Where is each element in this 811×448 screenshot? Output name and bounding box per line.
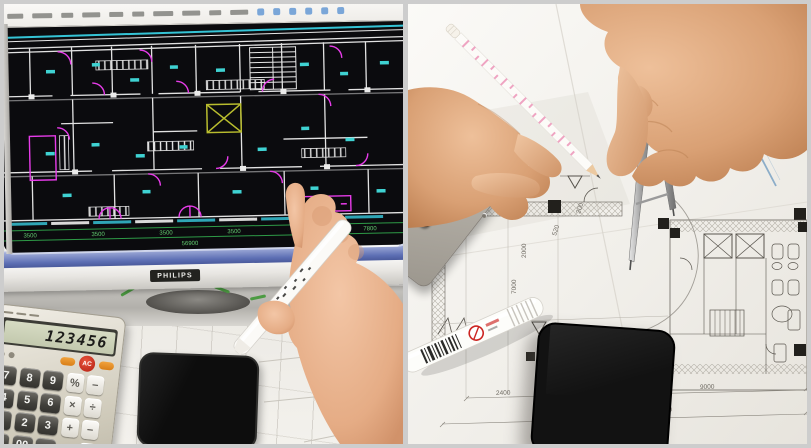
phone-screen-reflection: [546, 321, 677, 404]
smartphone: [136, 352, 259, 444]
menu-item-placeholder: [209, 10, 221, 15]
calculator-small-button: [8, 352, 15, 359]
calc-key-2: 2: [14, 412, 36, 433]
calc-key-9: 9: [42, 370, 64, 391]
dim-label: 3500: [295, 228, 309, 234]
menu-item-placeholder: [7, 14, 23, 19]
dim-label: 3500: [91, 232, 105, 238]
cad-columns: [28, 87, 372, 175]
calculator-keypad: 7 8 9 % − 4 5 6 × ÷ 1 2 3 + − 0 00 . =: [4, 365, 113, 444]
calc-key-6: 6: [39, 392, 61, 413]
calc-key-multiply: ×: [63, 395, 82, 416]
cad-walls: [4, 36, 403, 221]
calc-key-divide: ÷: [83, 397, 102, 418]
cad-hatched-walls: [58, 56, 347, 217]
menu-item-placeholder: [109, 12, 123, 17]
dim-7000: 7000: [511, 279, 518, 294]
calc-key-0: 0: [4, 432, 10, 444]
calc-key-plus: +: [60, 417, 79, 438]
calc-key-3: 3: [37, 415, 59, 436]
menu-item-placeholder: [32, 13, 52, 18]
menu-item-placeholder: [182, 10, 200, 15]
calc-key-1: 1: [4, 409, 12, 430]
toolbar-help-icon: [337, 7, 344, 14]
calc-key-4: 4: [4, 387, 15, 408]
dim-2000: 2000: [521, 243, 528, 258]
menu-item-placeholder: [132, 11, 144, 16]
calculator-memory-button: [60, 357, 76, 367]
calculator-ce-button: [99, 361, 115, 371]
dim-total-label: 56900: [182, 241, 199, 247]
calc-key-8: 8: [19, 367, 41, 388]
dim-2400: 2400: [496, 390, 511, 397]
monitor-brand-logo: PHILIPS: [150, 269, 200, 282]
toolbar-measure-icon: [289, 8, 296, 15]
cad-elevator: [207, 104, 242, 133]
calculator: 123456 AC 7 8 9 % − 4 5 6 × ÷ 1: [4, 303, 127, 444]
dim-label: 7800: [363, 226, 377, 232]
calc-key-7: 7: [4, 365, 17, 386]
calc-key-5: 5: [16, 390, 38, 411]
toolbar-info-icon: [321, 7, 328, 14]
dim-label: 3500: [227, 229, 241, 235]
calc-key-minus: −: [86, 375, 105, 396]
calc-key-dot: .: [34, 437, 56, 444]
right-photo-drafting: 2400 9000 30700 2000 7000 520 200 0 0 1 …: [408, 4, 807, 444]
calc-key-percent: %: [65, 373, 84, 394]
phone-screen-reflection: [136, 352, 202, 444]
menu-item-placeholder: [230, 10, 248, 15]
menu-item-placeholder: [61, 13, 73, 18]
calc-key-00: 00: [11, 434, 33, 444]
monitor-stand-hub: [146, 290, 250, 314]
calculator-small-button: [4, 351, 5, 358]
dim-label: 3500: [23, 233, 37, 239]
smartphone-on-plans: [530, 321, 677, 444]
menu-item-placeholder: [82, 12, 100, 17]
calculator-ac-button: AC: [78, 355, 96, 373]
toolbar-print-icon: [257, 8, 264, 15]
left-photo-cad-workstation: PHILIPS: [4, 4, 403, 444]
photo-collage: PHILIPS: [0, 0, 811, 448]
cad-curtain-wall: [4, 25, 403, 42]
calc-key-equals: =: [78, 442, 97, 444]
cad-room-labels: [44, 57, 392, 200]
cad-screen: 3500 3500 3500 3500 3500 7800 56900: [4, 16, 403, 253]
calc-key-minus2: −: [81, 420, 100, 441]
dim-9000: 9000: [700, 384, 715, 391]
cad-floor-plan: 3500 3500 3500 3500 3500 7800 56900: [4, 16, 403, 253]
toolbar-layers-icon: [273, 8, 280, 15]
toolbar-edit-icon: [305, 8, 312, 15]
menu-item-placeholder: [153, 11, 173, 16]
dim-label: 3500: [159, 230, 173, 236]
plant-sprig: [250, 294, 266, 300]
